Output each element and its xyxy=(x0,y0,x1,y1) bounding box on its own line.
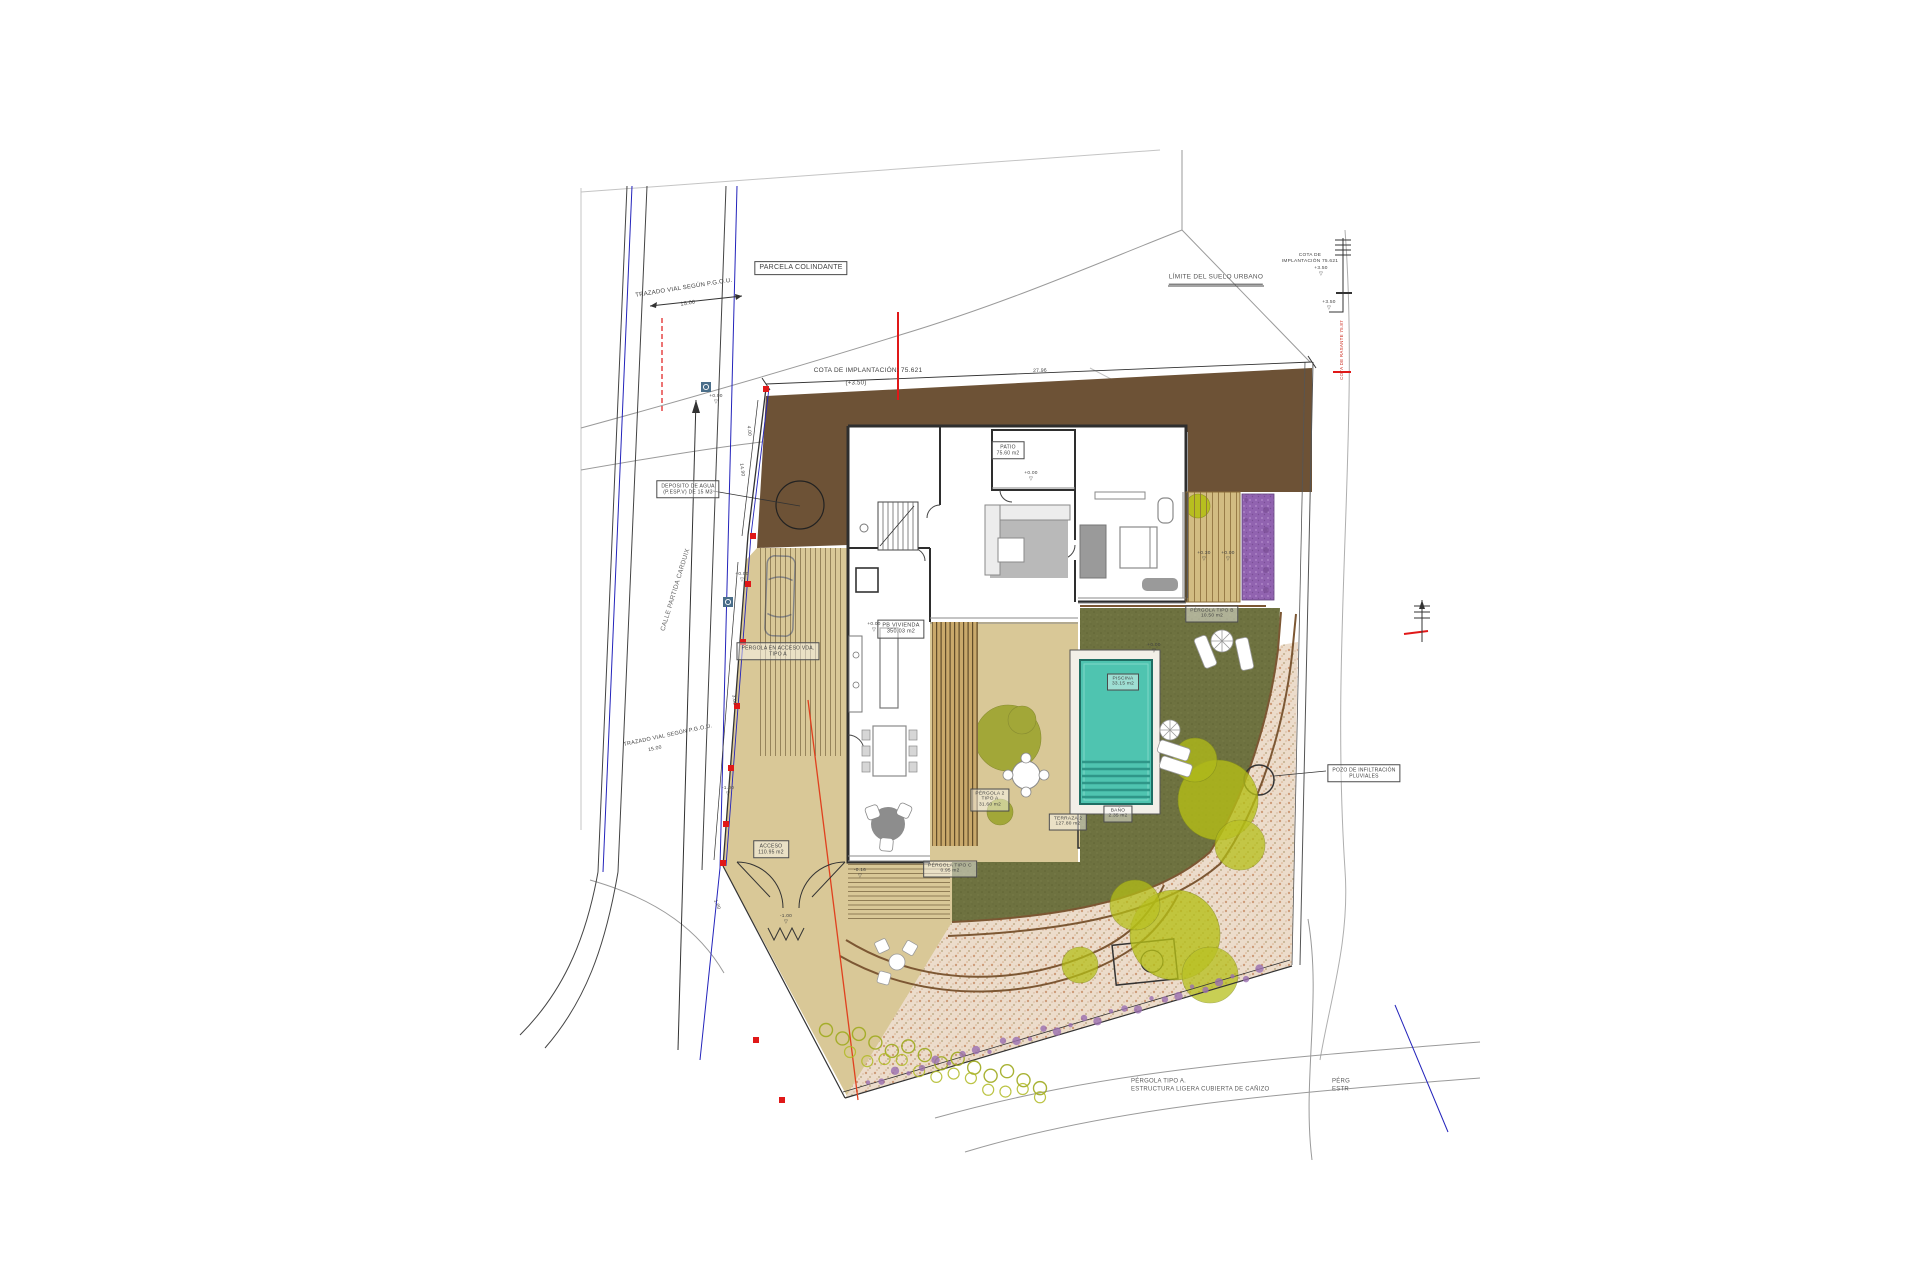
utility-icons xyxy=(701,382,733,607)
manhole-icon xyxy=(701,382,711,392)
site-plan-drawing xyxy=(0,0,1920,1280)
pool xyxy=(1070,650,1160,814)
purple-planting-bed xyxy=(1242,494,1274,600)
kitchen-counter xyxy=(849,636,862,712)
bathtub xyxy=(1158,498,1173,523)
north-arrow-head xyxy=(692,400,700,413)
bench xyxy=(1142,578,1178,591)
kitchen-island xyxy=(880,628,898,708)
bed xyxy=(1120,527,1157,568)
site-plan-sheet: PARCELA COLINDANTELÍMITE DEL SUELO URBAN… xyxy=(0,0,1920,1280)
street-lines xyxy=(520,186,737,1060)
valve-icon xyxy=(723,597,733,607)
stair xyxy=(878,502,918,550)
dining-table xyxy=(873,726,906,776)
carport xyxy=(756,548,845,756)
coffee-table xyxy=(998,538,1024,562)
